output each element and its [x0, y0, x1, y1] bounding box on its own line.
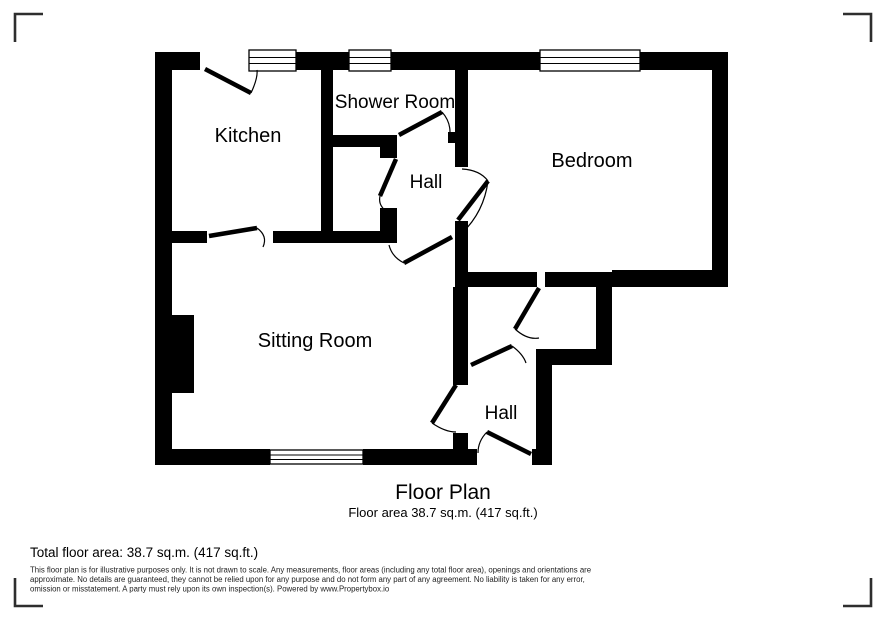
- door-lower-hall-sitting-room: [432, 385, 456, 432]
- wall-top-2: [296, 52, 349, 70]
- window-sitting-room: [270, 450, 363, 464]
- wall-lower-hall-right: [536, 365, 552, 465]
- door-rear-hall-lower-hall: [471, 346, 526, 365]
- door-hall-sitting-room: [389, 237, 452, 263]
- door-vestibule: [515, 288, 539, 338]
- room-labels: Kitchen Shower Room Hall Bedroom Sitting…: [215, 92, 633, 424]
- door-shower-room: [399, 112, 450, 135]
- disclaimer-line-2: approximate. No details are guaranteed, …: [30, 575, 585, 584]
- footer: Total floor area: 38.7 sq.m. (417 sq.ft.…: [30, 545, 591, 594]
- wall-kitchen-bottom-right: [273, 231, 397, 243]
- label-bedroom: Bedroom: [551, 150, 632, 172]
- chimney-breast: [172, 315, 194, 393]
- wall-bedroom-bottom-right: [545, 272, 612, 287]
- corner-mark-top-left: [15, 14, 43, 42]
- total-floor-area: Total floor area: 38.7 sq.m. (417 sq.ft.…: [30, 545, 258, 560]
- wall-vestibule-bottom: [536, 349, 612, 365]
- label-kitchen: Kitchen: [215, 125, 282, 147]
- wall-right-bedroom: [712, 52, 728, 287]
- window-shower-room: [349, 50, 391, 71]
- wall-lower-hall-left-stub: [453, 433, 468, 449]
- wall-shower-bottom: [333, 135, 397, 147]
- wall-hall-bedroom-upper: [455, 70, 468, 167]
- floor-plan-drawing: Kitchen Shower Room Hall Bedroom Sitting…: [0, 0, 886, 620]
- wall-bottom-2: [363, 449, 477, 465]
- plan-area-subtitle: Floor area 38.7 sq.m. (417 sq.ft.): [348, 505, 537, 520]
- disclaimer-line-3: omission or misstatement. A party must r…: [30, 585, 390, 594]
- wall-kitchen-bottom-left: [172, 231, 207, 243]
- label-shower-room: Shower Room: [335, 92, 455, 113]
- wall-bedroom-bottom-exterior: [612, 270, 728, 287]
- wall-rear-hall-left: [453, 287, 468, 385]
- door-kitchen-sitting-room: [209, 228, 265, 247]
- wall-hall-jamb-lower: [380, 208, 397, 231]
- wall-left: [155, 52, 172, 465]
- corner-mark-top-right: [843, 14, 871, 42]
- label-hall-upper: Hall: [410, 172, 443, 193]
- window-bedroom: [540, 50, 640, 71]
- window-kitchen: [249, 50, 296, 71]
- wall-kitchen-shower-divider: [321, 70, 333, 243]
- disclaimer-line-1: This floor plan is for illustrative purp…: [30, 566, 591, 575]
- plan-caption: Floor Plan Floor area 38.7 sq.m. (417 sq…: [348, 481, 537, 520]
- label-hall-lower: Hall: [485, 403, 518, 424]
- wall-top-3: [391, 52, 540, 70]
- plan-title: Floor Plan: [395, 481, 491, 504]
- wall-shower-door-jamb: [448, 132, 455, 143]
- door-kitchen-entry: [205, 69, 257, 93]
- corner-mark-bottom-right: [843, 578, 871, 606]
- door-front-entrance: [478, 432, 531, 454]
- label-sitting-room: Sitting Room: [258, 330, 373, 352]
- floor-plan-page: { "plan": { "rooms": [ {"label": "Kitche…: [0, 0, 886, 620]
- wall-bedroom-bottom-left: [455, 272, 537, 287]
- wall-hall-jamb-upper: [380, 147, 397, 158]
- wall-bottom-1: [155, 449, 270, 465]
- door-hall-kitchen: [380, 159, 396, 211]
